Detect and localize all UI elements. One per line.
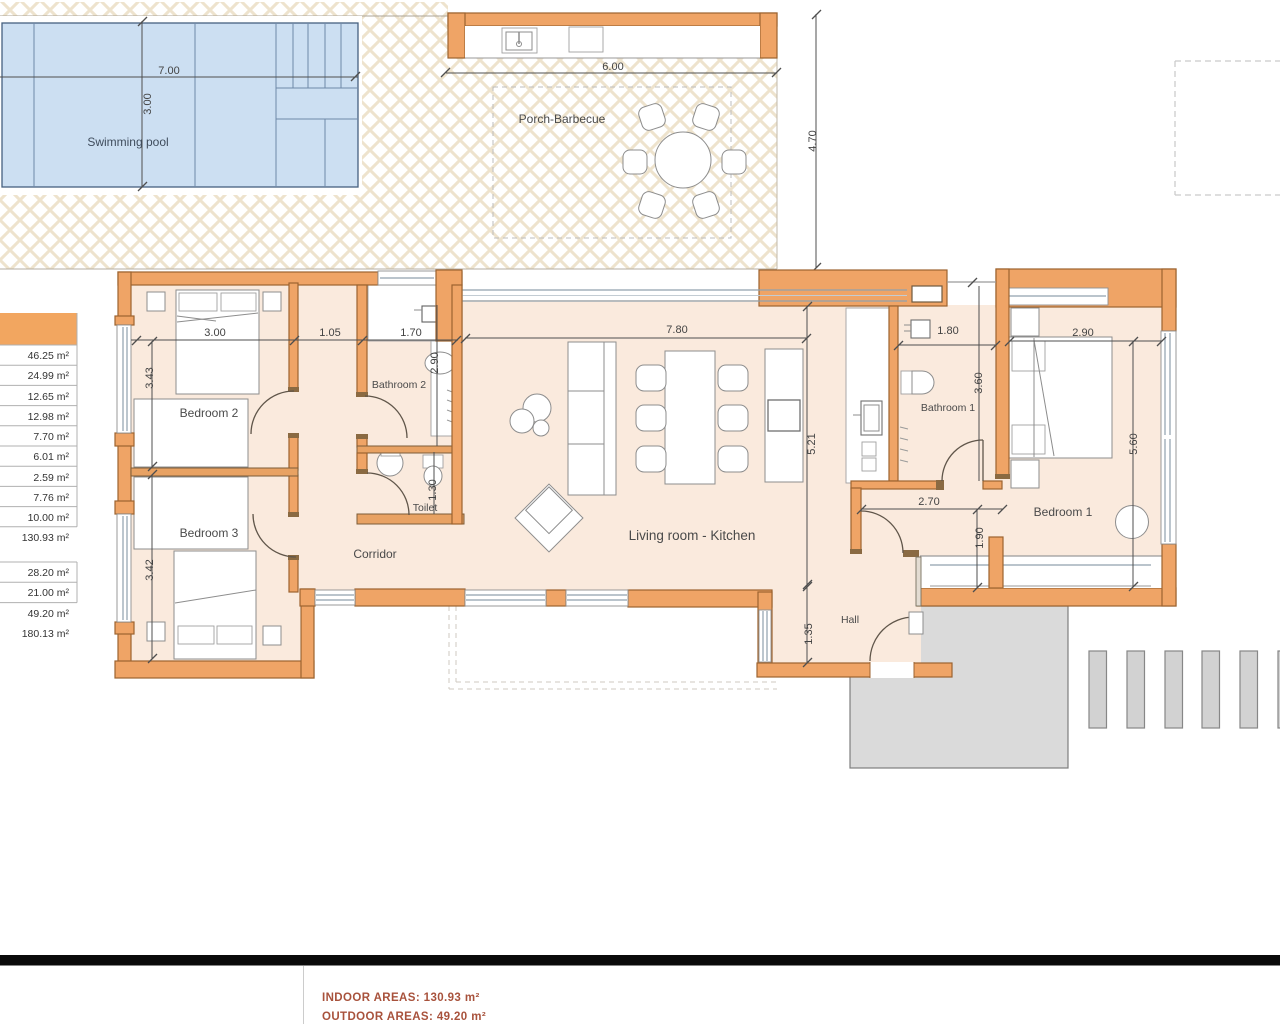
svg-text:28.20 m²: 28.20 m² xyxy=(28,567,70,579)
svg-text:7.00: 7.00 xyxy=(158,65,179,77)
svg-text:21.00 m²: 21.00 m² xyxy=(28,587,70,599)
svg-text:130.93 m²: 130.93 m² xyxy=(22,532,70,544)
svg-text:3.42: 3.42 xyxy=(144,559,156,580)
svg-text:Swimming pool: Swimming pool xyxy=(87,135,168,149)
svg-text:1.30: 1.30 xyxy=(427,479,439,500)
svg-text:6.01 m²: 6.01 m² xyxy=(33,451,69,463)
svg-text:Porch-Barbecue: Porch-Barbecue xyxy=(519,112,606,126)
svg-text:Bathroom 2: Bathroom 2 xyxy=(372,379,426,391)
svg-text:1.05: 1.05 xyxy=(319,327,340,339)
svg-text:3.00: 3.00 xyxy=(142,93,154,114)
svg-text:12.65 m²: 12.65 m² xyxy=(28,391,70,403)
svg-text:180.13 m²: 180.13 m² xyxy=(22,628,70,640)
svg-text:3.00: 3.00 xyxy=(204,327,225,339)
svg-text:Hall: Hall xyxy=(841,614,859,626)
svg-text:2.70: 2.70 xyxy=(918,496,939,508)
svg-text:1.35: 1.35 xyxy=(803,623,815,644)
svg-text:49.20 m²: 49.20 m² xyxy=(28,608,70,620)
svg-text:INDOOR AREAS: 130.93 m²: INDOOR AREAS: 130.93 m² xyxy=(322,992,480,1004)
svg-text:2.90: 2.90 xyxy=(1072,327,1093,339)
svg-text:Bedroom 2: Bedroom 2 xyxy=(180,406,239,420)
svg-text:1.70: 1.70 xyxy=(400,327,421,339)
svg-text:Corridor: Corridor xyxy=(353,547,396,561)
svg-text:1.90: 1.90 xyxy=(974,527,986,548)
svg-text:3.43: 3.43 xyxy=(144,367,156,388)
svg-text:Bedroom 1: Bedroom 1 xyxy=(1034,505,1093,519)
svg-text:7.70 m²: 7.70 m² xyxy=(33,431,69,443)
svg-text:Bathroom 1: Bathroom 1 xyxy=(921,402,975,414)
svg-text:24.99 m²: 24.99 m² xyxy=(28,370,70,382)
svg-text:2.90: 2.90 xyxy=(429,352,441,373)
svg-text:4.70: 4.70 xyxy=(807,130,819,151)
svg-text:6.00: 6.00 xyxy=(602,61,623,73)
svg-text:2.59 m²: 2.59 m² xyxy=(33,472,69,484)
svg-text:Toilet: Toilet xyxy=(413,502,438,514)
svg-text:OUTDOOR AREAS: 49.20 m²: OUTDOOR AREAS: 49.20 m² xyxy=(322,1011,486,1023)
svg-text:7.76 m²: 7.76 m² xyxy=(33,492,69,504)
svg-text:46.25 m²: 46.25 m² xyxy=(28,350,70,362)
svg-text:Bedroom 3: Bedroom 3 xyxy=(180,526,239,540)
svg-text:12.98 m²: 12.98 m² xyxy=(28,411,70,423)
svg-text:5.60: 5.60 xyxy=(1128,433,1140,454)
svg-text:Living room - Kitchen: Living room - Kitchen xyxy=(629,528,756,543)
svg-text:1.80: 1.80 xyxy=(937,325,958,337)
svg-text:3.60: 3.60 xyxy=(973,372,985,393)
svg-text:5.21: 5.21 xyxy=(806,433,818,454)
svg-text:7.80: 7.80 xyxy=(666,324,687,336)
svg-text:10.00 m²: 10.00 m² xyxy=(28,512,70,524)
